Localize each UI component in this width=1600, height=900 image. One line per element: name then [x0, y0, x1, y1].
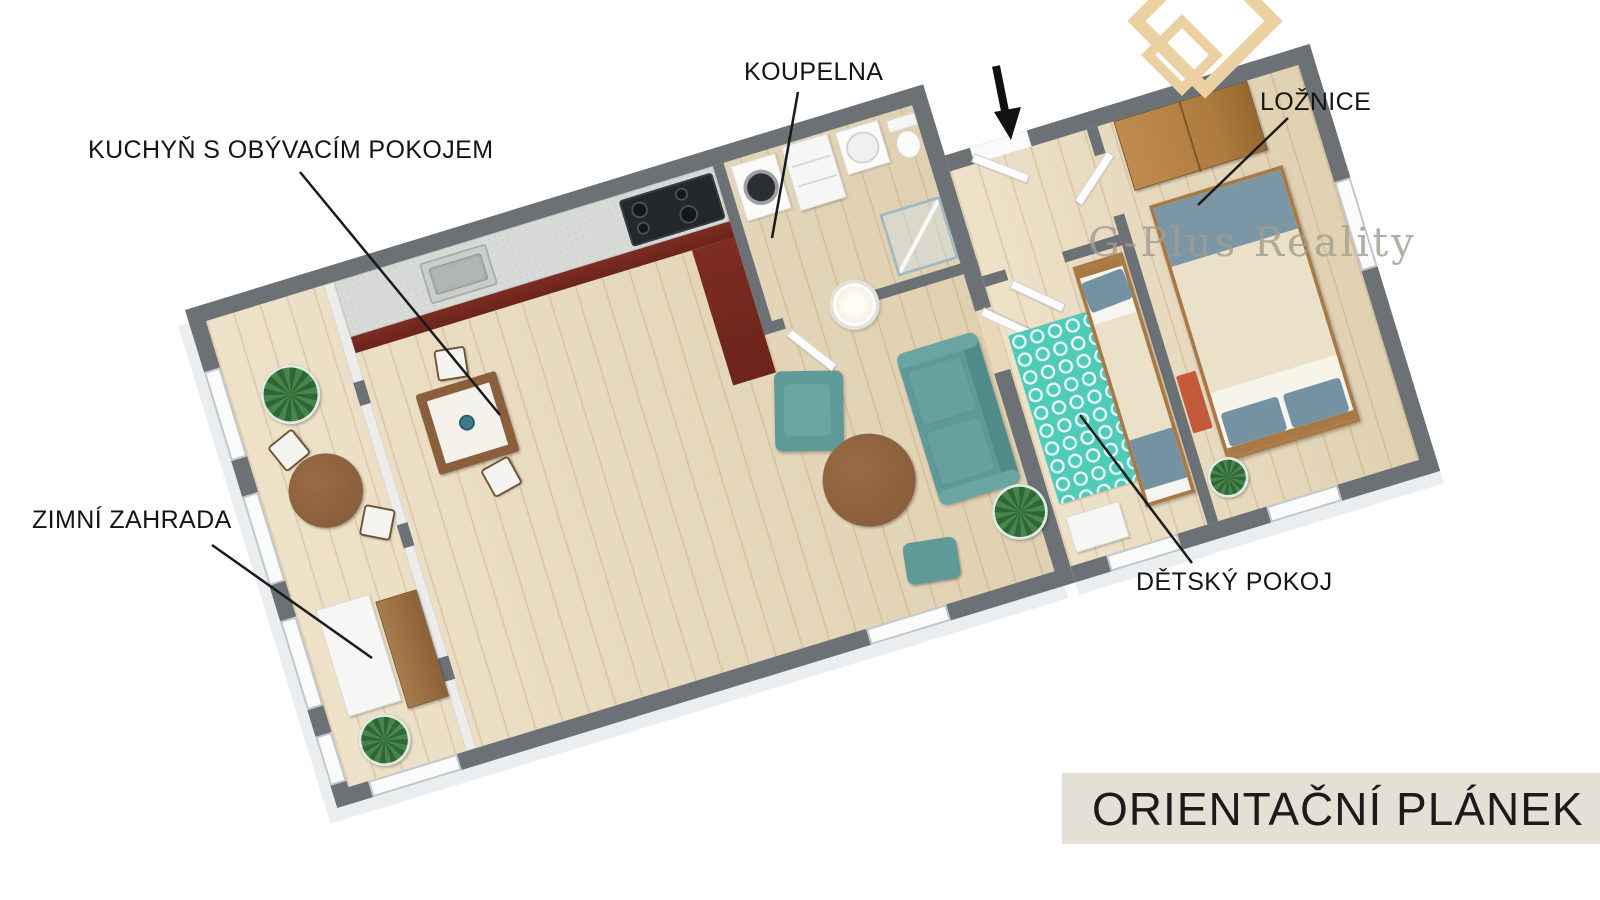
wardrobe-divider [1179, 102, 1202, 172]
burner [635, 220, 651, 236]
burner [629, 199, 650, 220]
chair [359, 504, 396, 541]
blanket [1129, 427, 1187, 490]
floor-plant [1203, 452, 1254, 503]
toilet-bowl [893, 127, 924, 161]
label-bathroom: KOUPELNA [744, 58, 883, 87]
bathroom-drawer-unit [781, 133, 847, 211]
floor-plan [185, 0, 1440, 808]
burner [677, 203, 700, 226]
burner [673, 186, 689, 202]
dining-chair [433, 346, 469, 382]
drawer-line [792, 154, 832, 168]
floor-plan-page: KUCHYŇ S OBÝVACÍM POKOJEM KOUPELNA LOŽNI… [0, 0, 1600, 900]
ottoman [902, 536, 962, 586]
drawer-line [798, 174, 838, 188]
armchair [774, 370, 844, 451]
bathroom-door [786, 329, 837, 372]
title-banner: ORIENTAČNÍ PLÁNEK [1062, 773, 1600, 844]
label-winter-garden: ZIMNÍ ZAHRADA [32, 506, 232, 535]
label-kids-room: DĚTSKÝ POKOJ [1136, 568, 1333, 597]
label-bedroom: LOŽNICE [1260, 88, 1371, 117]
armchair-cushion [784, 384, 831, 437]
kids-desk [1065, 501, 1129, 553]
watermark: G-Plus Reality [1088, 220, 1417, 266]
floor-plant [352, 708, 417, 773]
title-banner-text: ORIENTAČNÍ PLÁNEK [1092, 782, 1584, 836]
palm-plant [253, 357, 327, 431]
toilet-tank [886, 112, 918, 133]
sink-vanity [835, 120, 891, 176]
dining-chair [480, 455, 523, 498]
label-kitchen-living: KUCHYŇ S OBÝVACÍM POKOJEM [88, 136, 493, 165]
washing-machine [730, 153, 791, 222]
sofa-cushion [906, 355, 978, 427]
